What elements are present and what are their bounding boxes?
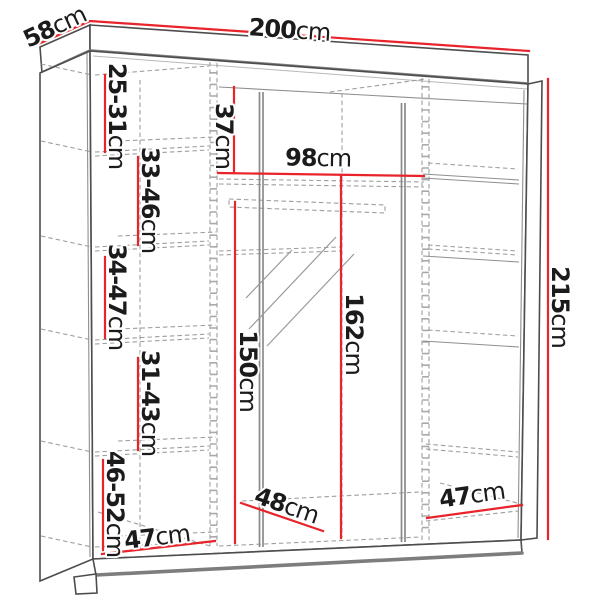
hanging-height-label: 150cm — [234, 330, 262, 412]
left-gap-4-label: 31-43cm — [136, 350, 164, 456]
left-foot — [74, 574, 97, 594]
top-gap-label: 37cm — [210, 103, 238, 169]
left-side-panel — [40, 51, 93, 581]
left-gap-3-label: 34-47cm — [103, 244, 131, 350]
wardrobe-dimension-diagram: 200cm 58cm 215cm 25-31cm 33-46cm 34-47cm… — [0, 0, 600, 600]
open-height-label: 162cm — [340, 293, 368, 375]
height-label: 215cm — [546, 266, 574, 348]
left-gap-2-label: 33-46cm — [136, 147, 164, 253]
diagram-canvas: 200cm 58cm 215cm 25-31cm 33-46cm 34-47cm… — [0, 0, 600, 600]
middle-width-label: 98cm — [285, 143, 351, 172]
width-label: 200cm — [248, 13, 331, 47]
left-gap-1-label: 25-31cm — [103, 63, 131, 169]
